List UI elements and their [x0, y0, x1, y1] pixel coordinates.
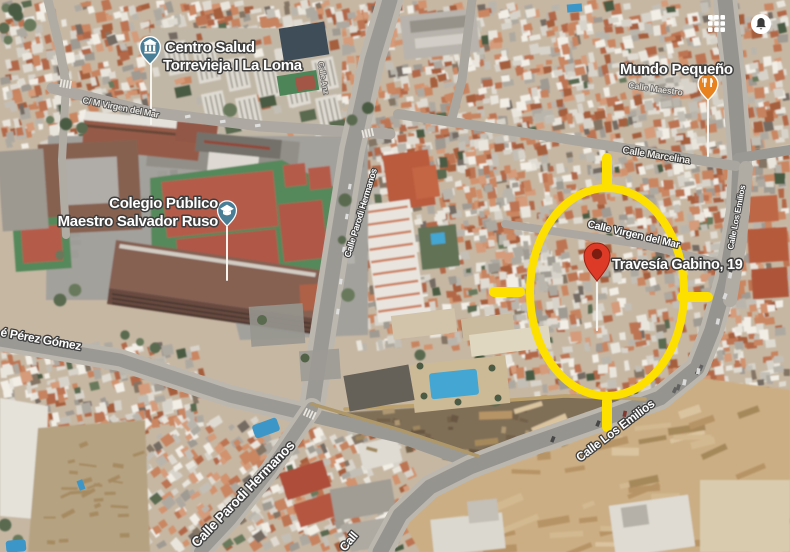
svg-text:Colegio Público: Colegio Público: [109, 195, 218, 212]
svg-text:Torrevieja I La Loma: Torrevieja I La Loma: [163, 57, 303, 74]
svg-text:Centro Salud: Centro Salud: [165, 39, 255, 56]
svg-text:Mundo Pequeño: Mundo Pequeño: [620, 61, 733, 78]
svg-text:Travesía Gabino, 19: Travesía Gabino, 19: [612, 257, 743, 273]
svg-text:Maestro Salvador Ruso: Maestro Salvador Ruso: [58, 213, 219, 230]
